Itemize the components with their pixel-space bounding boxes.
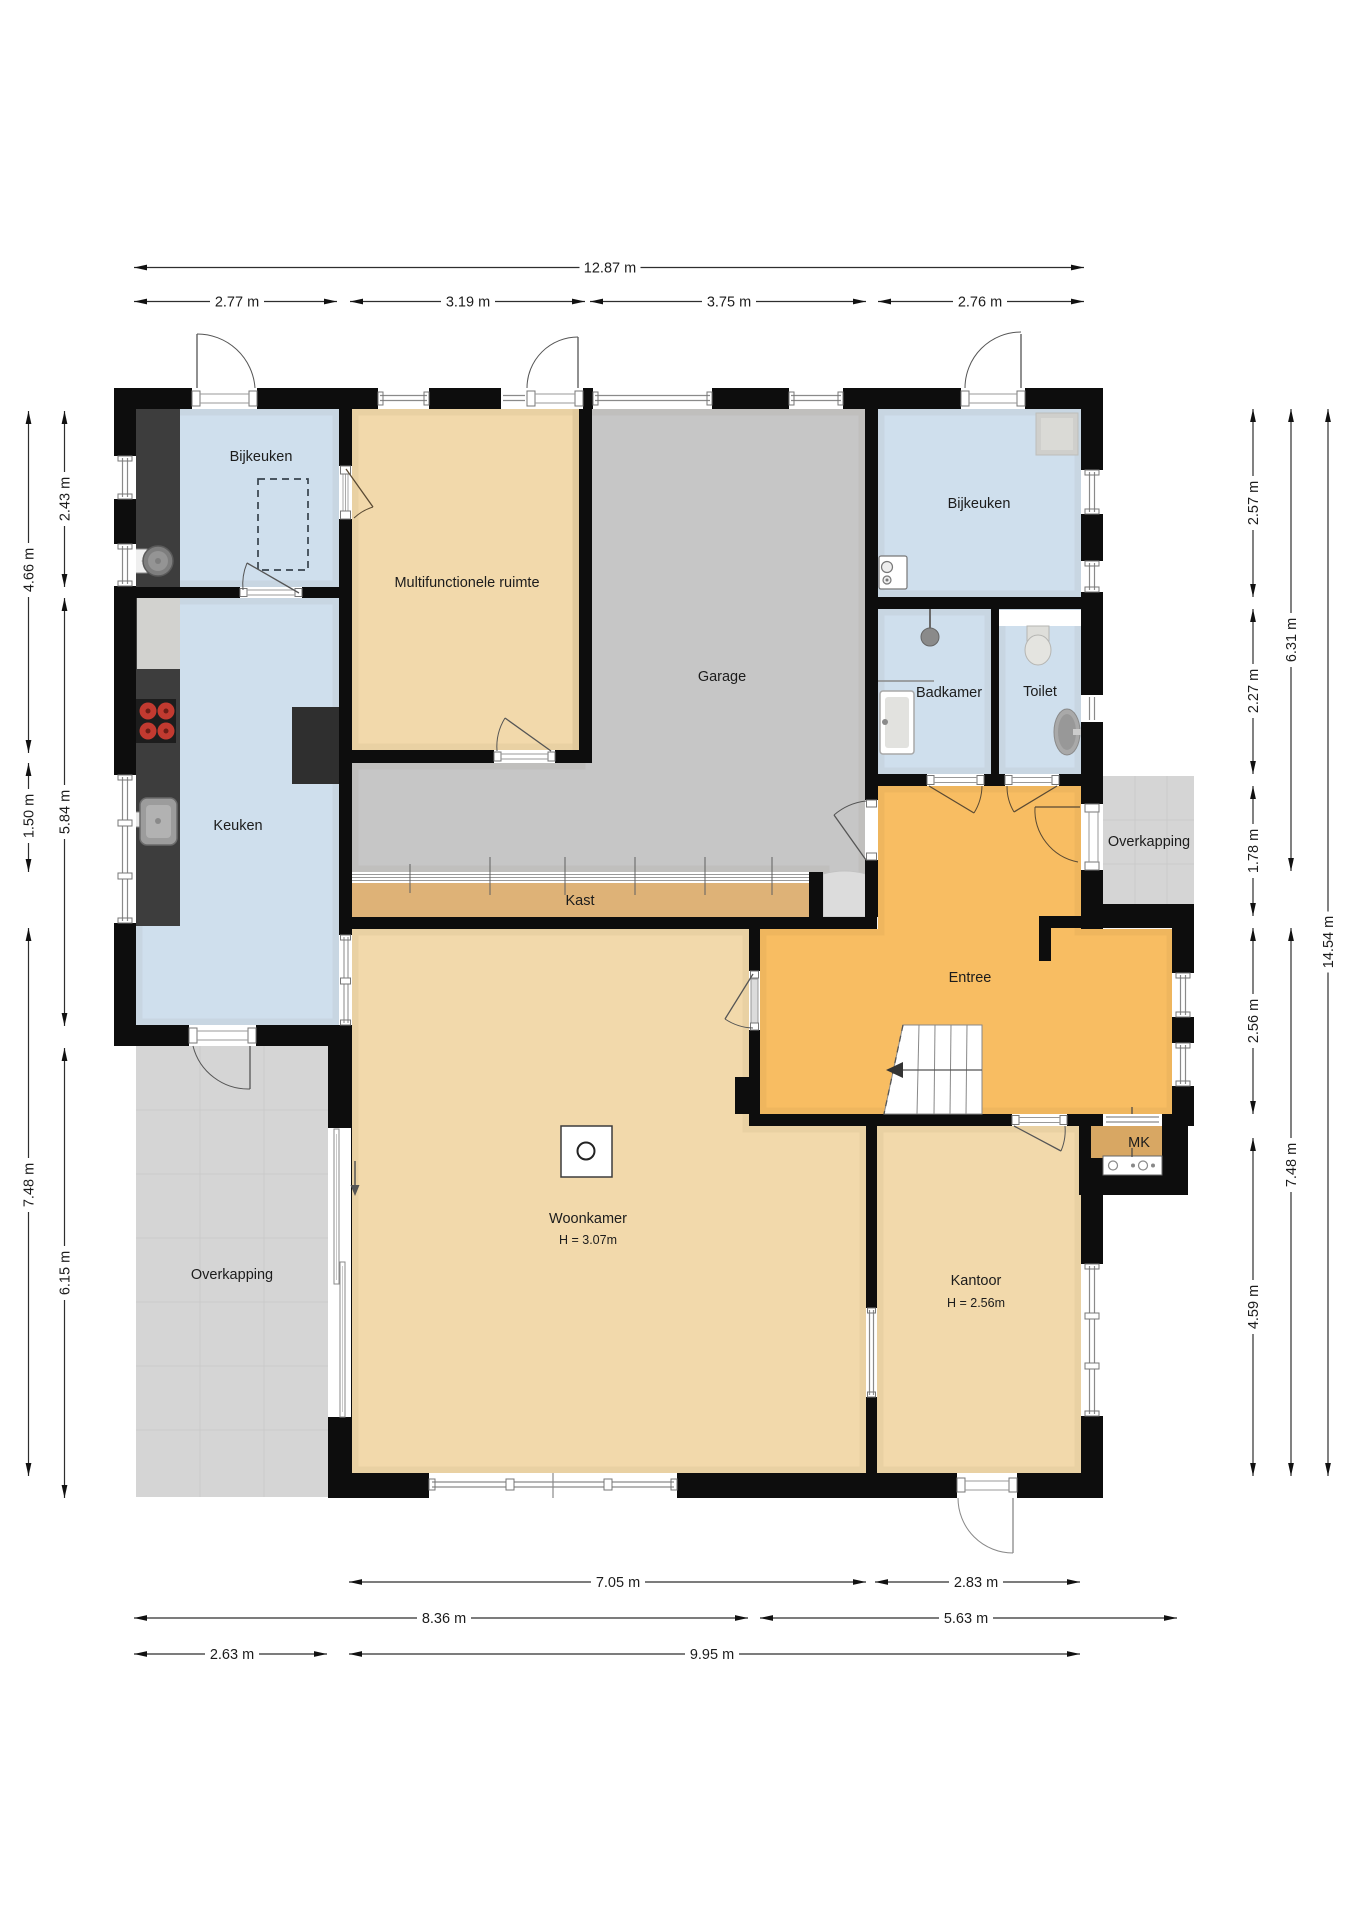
svg-text:2.57 m: 2.57 m — [1246, 481, 1262, 525]
svg-text:Kantoor: Kantoor — [951, 1273, 1002, 1289]
svg-text:7.48 m: 7.48 m — [1284, 1143, 1300, 1187]
svg-text:Entree: Entree — [949, 970, 992, 986]
svg-text:4.59 m: 4.59 m — [1246, 1285, 1262, 1329]
svg-text:4.66 m: 4.66 m — [22, 548, 38, 592]
svg-text:MK: MK — [1128, 1135, 1150, 1151]
svg-text:8.36 m: 8.36 m — [422, 1611, 466, 1627]
svg-text:Bijkeuken: Bijkeuken — [230, 449, 293, 465]
svg-text:2.43 m: 2.43 m — [58, 477, 74, 521]
svg-text:H = 2.56m: H = 2.56m — [947, 1296, 1005, 1310]
svg-text:2.83 m: 2.83 m — [954, 1575, 998, 1591]
svg-text:2.76 m: 2.76 m — [958, 295, 1002, 311]
svg-text:5.84 m: 5.84 m — [58, 790, 74, 834]
svg-text:Keuken: Keuken — [213, 818, 262, 834]
svg-text:Bijkeuken: Bijkeuken — [948, 496, 1011, 512]
svg-text:6.31 m: 6.31 m — [1284, 618, 1300, 662]
svg-text:Overkapping: Overkapping — [191, 1267, 273, 1283]
svg-text:H = 3.07m: H = 3.07m — [559, 1233, 617, 1247]
svg-text:Multifunctionele ruimte: Multifunctionele ruimte — [394, 575, 539, 591]
svg-text:1.50 m: 1.50 m — [22, 794, 38, 838]
svg-text:2.27 m: 2.27 m — [1246, 669, 1262, 713]
svg-text:Woonkamer: Woonkamer — [549, 1211, 627, 1227]
svg-text:3.19 m: 3.19 m — [446, 295, 490, 311]
svg-text:3.75 m: 3.75 m — [707, 295, 751, 311]
svg-text:Kast: Kast — [565, 893, 594, 909]
svg-text:2.56 m: 2.56 m — [1246, 999, 1262, 1043]
svg-text:6.15 m: 6.15 m — [58, 1251, 74, 1295]
svg-text:Overkapping: Overkapping — [1108, 834, 1190, 850]
svg-text:7.05 m: 7.05 m — [596, 1575, 640, 1591]
svg-text:2.77 m: 2.77 m — [215, 295, 259, 311]
svg-text:9.95 m: 9.95 m — [690, 1647, 734, 1663]
svg-text:Garage: Garage — [698, 669, 746, 685]
svg-text:Badkamer: Badkamer — [916, 685, 982, 701]
svg-text:1.78 m: 1.78 m — [1246, 829, 1262, 873]
svg-text:5.63 m: 5.63 m — [944, 1611, 988, 1627]
svg-text:12.87 m: 12.87 m — [584, 261, 636, 277]
svg-text:14.54 m: 14.54 m — [1321, 916, 1337, 968]
svg-text:Toilet: Toilet — [1023, 684, 1057, 700]
svg-text:7.48 m: 7.48 m — [22, 1163, 38, 1207]
svg-text:2.63 m: 2.63 m — [210, 1647, 254, 1663]
